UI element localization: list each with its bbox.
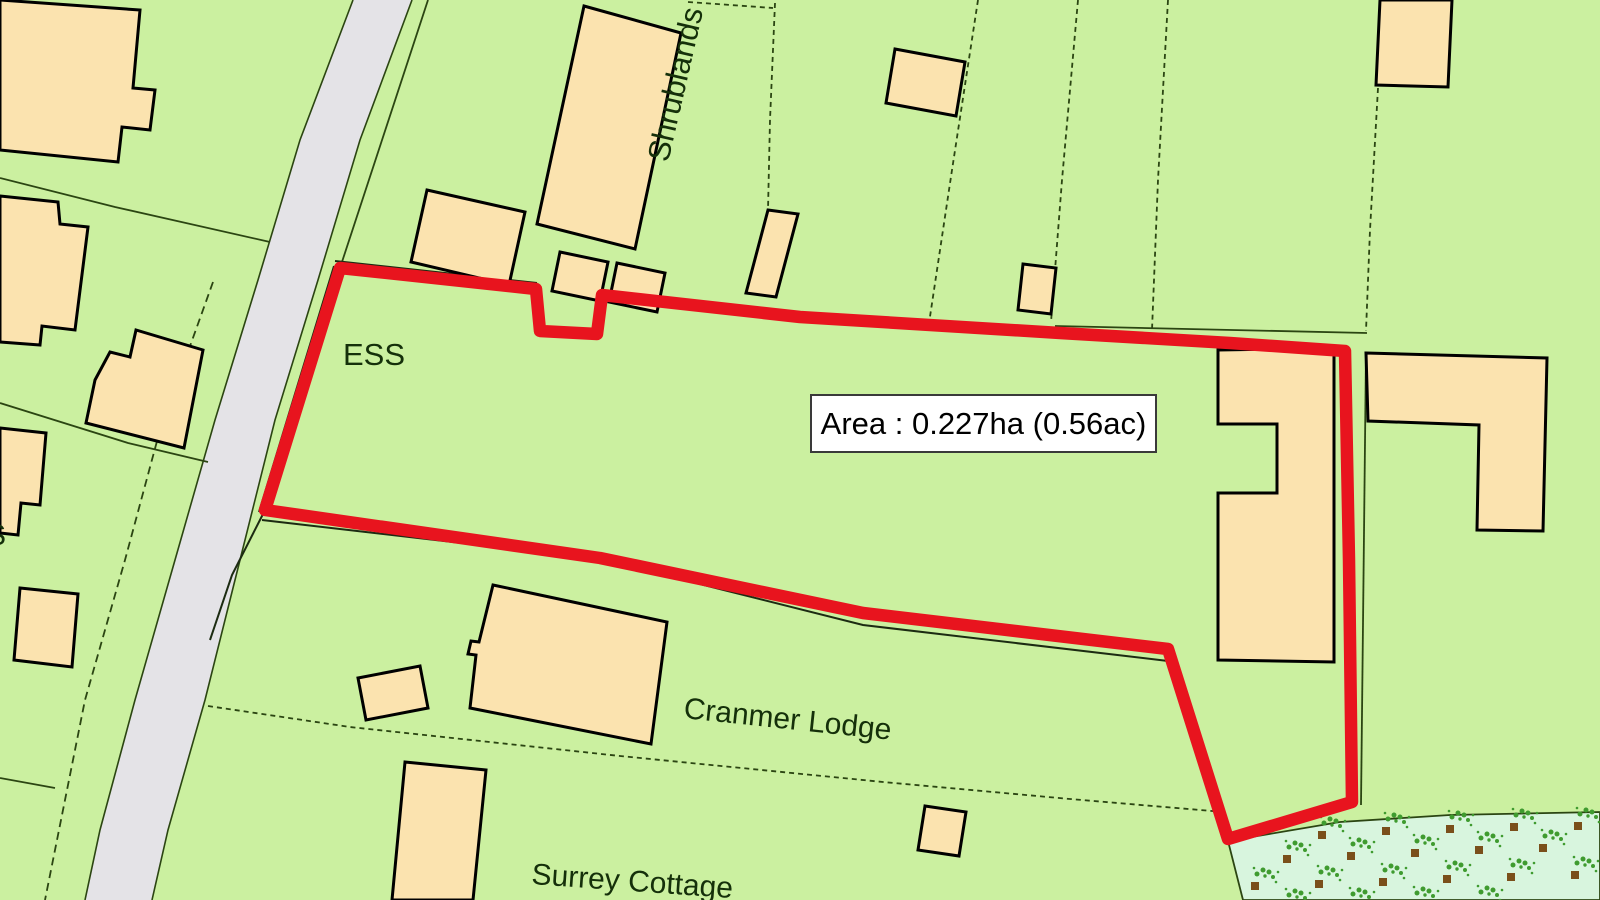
label-surrey-cottage: Surrey Cottage [531, 858, 735, 900]
building [0, 0, 155, 162]
building [392, 762, 486, 900]
building [1018, 264, 1056, 314]
building [746, 210, 798, 297]
site-boundary-polygon[interactable] [265, 268, 1352, 839]
building [14, 588, 78, 667]
building [918, 806, 966, 856]
area-measurement-box[interactable]: Area : 0.227ha (0.56ac) [810, 394, 1157, 453]
building-inside-boundary [1218, 348, 1334, 662]
l-shaped-building [1366, 353, 1547, 531]
building [358, 666, 428, 720]
site-plan-map: Shrublands ESS Cranmer Lodge Surrey Cott… [0, 0, 1600, 900]
building [0, 428, 46, 535]
building [1376, 0, 1452, 87]
building [0, 196, 88, 345]
label-cranmer-lodge: Cranmer Lodge [682, 692, 893, 747]
cranmer-lodge-building [468, 585, 667, 744]
label-edge-partial: S [0, 519, 6, 552]
building [886, 49, 965, 116]
label-ess: ESS [343, 337, 405, 372]
road [85, 0, 412, 900]
building [86, 330, 203, 448]
map-canvas: Shrublands ESS Cranmer Lodge Surrey Cott… [0, 0, 1600, 900]
